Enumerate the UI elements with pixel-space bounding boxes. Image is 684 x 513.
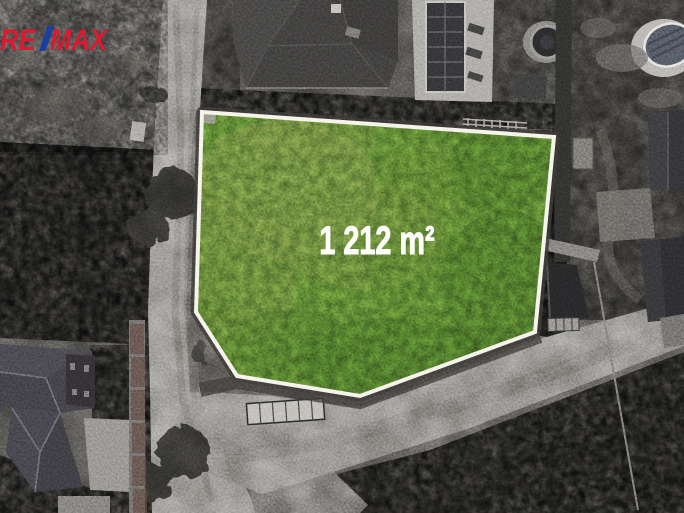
svg-text:1 212 m²: 1 212 m² (319, 218, 434, 263)
svg-text:RE: RE (0, 24, 37, 57)
svg-text:MAX: MAX (50, 24, 109, 57)
